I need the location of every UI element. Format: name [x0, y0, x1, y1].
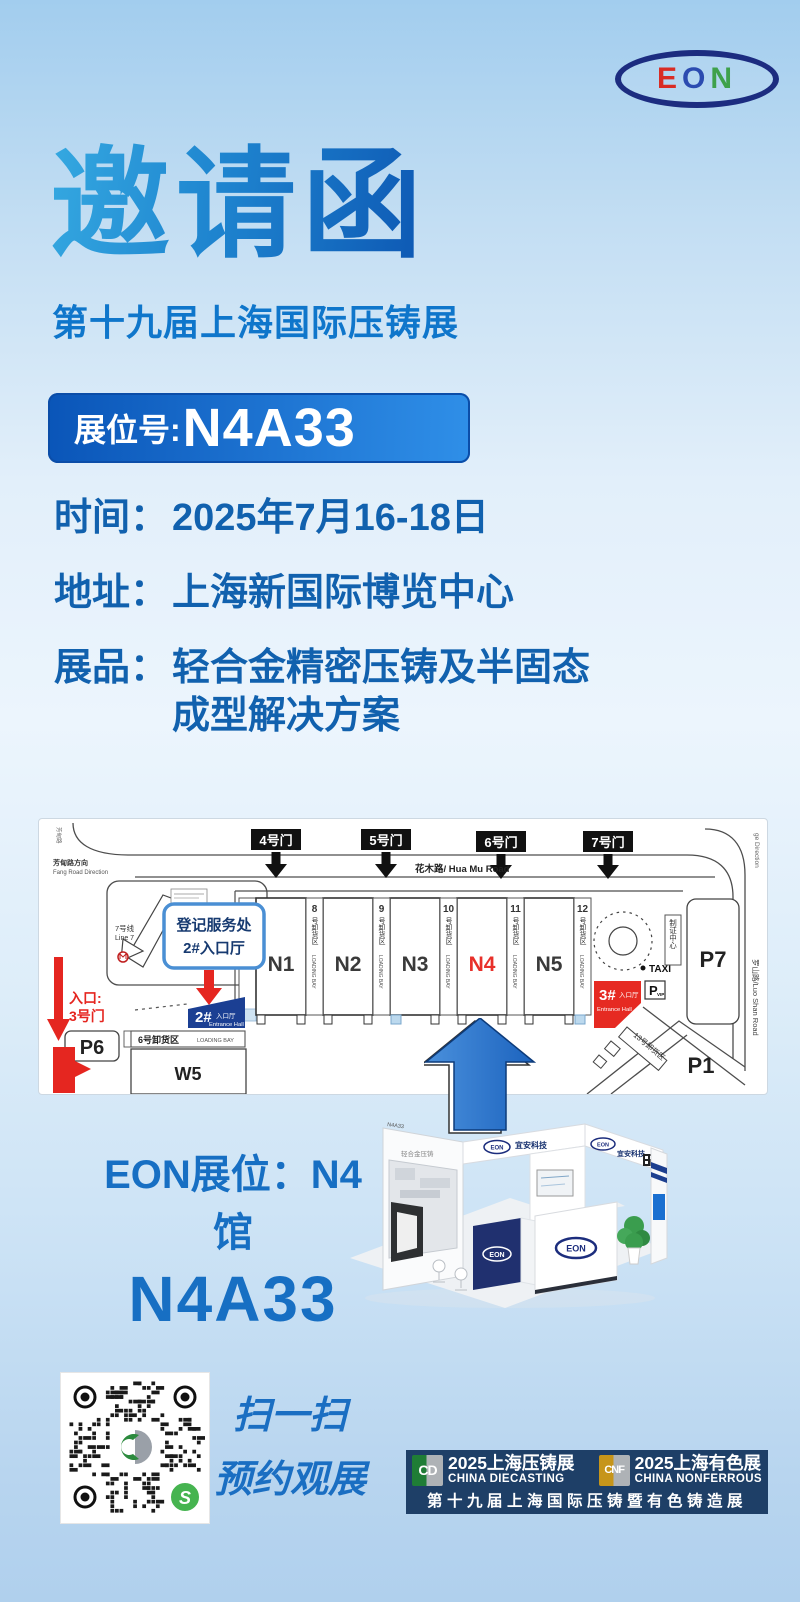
callout-line2: 2#入口厅	[183, 940, 245, 957]
p7-label: P7	[700, 947, 727, 972]
gate-5-label: 5号门	[369, 833, 402, 848]
parking-p7: P7	[687, 899, 739, 1024]
booth-badge-number: N4A33	[183, 397, 356, 459]
hall-n5: N5	[524, 898, 574, 1024]
hall-n2-label: N2	[335, 953, 362, 976]
bay6-strip: 6号卸货区 LOADING BAY	[124, 1031, 245, 1047]
detail-row-time: 时间： 2025年7月16-18日	[54, 494, 754, 542]
hall-n3: N3	[390, 898, 440, 1024]
left-direction-en: Fang Road Direction	[53, 870, 108, 876]
strip10-en: LOADING BAY	[444, 955, 450, 989]
entrance2-en: Entrance Hall	[209, 1022, 244, 1028]
event-details: 时间： 2025年7月16-18日 地址： 上海新国际博览中心 展品： 轻合金精…	[54, 494, 754, 767]
p6-label: P6	[80, 1037, 104, 1059]
hall-n4-label: N4	[469, 953, 496, 976]
strip10-num: 10	[443, 904, 455, 915]
detail-row-exhibits: 展品： 轻合金精密压铸及半固态 成型解决方案	[54, 644, 754, 740]
booth-hall-line: EON展位：N4馆	[102, 1142, 364, 1258]
detail-row-address: 地址： 上海新国际博览中心	[54, 569, 754, 617]
diecasting-subtitle: CHINA DIECASTING	[448, 1473, 574, 1486]
strip10-cn: 号卸货区	[445, 917, 453, 945]
vip-parking: P VIP	[645, 981, 665, 999]
logo-letter-n: N	[710, 64, 737, 94]
road-huamu-label: 花木路/ Hua Mu Road	[415, 863, 510, 875]
navy-desk-eon-logo: EON	[489, 1252, 504, 1259]
entrance-hall-2: 2# 入口厅 Entrance Hall	[188, 997, 245, 1028]
road-luoshan-label: 罗山路/Luo Shan Road	[751, 959, 761, 1036]
p1-label: P1	[688, 1053, 715, 1078]
booth-pointer-arrow	[424, 1018, 536, 1134]
expo-banner: CD 2025上海压铸展 CHINA DIECASTING CNF 2025上海…	[406, 1450, 768, 1514]
booth-number-line: N4A33	[102, 1262, 364, 1336]
halls: N1 N2 N3 N4	[256, 898, 574, 1024]
beam1-eon-logo: EON	[490, 1146, 503, 1152]
gate-7-label: 7号门	[591, 835, 624, 850]
detail-value-exhibits-line1: 轻合金精密压铸及半固态	[172, 644, 590, 692]
metro-line-label: 7号线	[115, 923, 135, 933]
hall-n5-label: N5	[536, 953, 563, 976]
logo-letter-e: E	[657, 64, 682, 94]
diecasting-title: 2025上海压铸展	[448, 1454, 574, 1473]
expo-banner-bottom: 第十九届上海国际压铸暨有色铸造展	[412, 1489, 762, 1511]
parking-p1: 13号卸货区 P1	[593, 1027, 714, 1078]
booth-wall-text: 轻合金压铸	[401, 1149, 434, 1158]
detail-label-time: 时间：	[54, 494, 172, 542]
strip11-num: 11	[510, 904, 521, 915]
hall-n2: N2	[323, 898, 373, 1024]
strip8-num: 8	[312, 904, 318, 915]
bay6-cn: 6号卸货区	[138, 1034, 179, 1045]
cert-center: 制证中心	[665, 915, 681, 965]
left-edge-road-label: 芳甸路	[55, 827, 63, 844]
desk-eon-logo: EON	[566, 1244, 586, 1254]
booth-left-wall: 轻合金压铸 N4A33	[383, 1122, 463, 1290]
qr-center-logo	[116, 1428, 154, 1466]
beam1-brand: 宜安科技	[515, 1140, 548, 1150]
qr-code-svg: S	[65, 1377, 205, 1517]
bay6-en: LOADING BAY	[197, 1038, 234, 1044]
corner-direction-note: ge Direction	[753, 833, 760, 868]
entrance3-cn: 入口厅	[619, 991, 639, 999]
scan-line2: 预约观展	[190, 1448, 390, 1503]
w5-label: W5	[175, 1064, 202, 1084]
expo-banner-top: CD 2025上海压铸展 CHINA DIECASTING CNF 2025上海…	[412, 1454, 762, 1486]
hall-n4-highlight: N4	[457, 898, 507, 1024]
entrance-hall-3: 3# 入口厅 Entrance Hall	[594, 981, 641, 1028]
booth-badge-label: 展位号:	[74, 405, 181, 451]
gate-5: 5号门	[361, 829, 411, 878]
invitation-poster: E O N 邀请函 第十九届上海国际压铸展 展位号: N4A33 时间： 202…	[0, 0, 800, 1602]
gate-6-label: 6号门	[484, 835, 517, 850]
venue-map-svg: 芳甸路方向 Fang Road Direction 芳甸路 7号线 Line 7	[39, 819, 767, 1094]
expo-nonferrous: CNF 2025上海有色展 CHINA NONFERROUS	[599, 1454, 762, 1486]
entry-line2: 3号门	[69, 1008, 105, 1024]
detail-value-exhibits: 轻合金精密压铸及半固态 成型解决方案	[172, 644, 590, 740]
detail-value-time: 2025年7月16-18日	[172, 494, 489, 542]
taxi-label: TAXI	[649, 964, 671, 975]
entry-arrow-group	[47, 957, 91, 1093]
nonferrous-logo: CNF	[599, 1455, 630, 1486]
entrance3-num: 3#	[599, 987, 616, 1004]
detail-label-address: 地址：	[54, 569, 172, 617]
strip11-en: LOADING BAY	[511, 955, 517, 989]
booth-navy-desk: EON	[473, 1218, 541, 1290]
gate-4: 4号门	[251, 829, 301, 878]
taxi-dot	[641, 966, 646, 971]
logo-letter-o: O	[682, 64, 710, 94]
nonferrous-subtitle: CHINA NONFERROUS	[635, 1473, 762, 1486]
callout-line1: 登记服务处	[175, 916, 252, 934]
booth-caption: EON展位：N4馆 N4A33	[102, 1142, 364, 1336]
entry-line1: 入口:	[69, 990, 102, 1006]
strip12-en: LOADING BAY	[578, 955, 584, 989]
strip9-cn: 号卸货区	[378, 917, 386, 945]
strip11-cn: 号卸货区	[512, 917, 520, 945]
entrance2-cn: 入口厅	[216, 1012, 236, 1020]
strip9-num: 9	[379, 904, 385, 915]
detail-value-address: 上海新国际博览中心	[172, 569, 514, 617]
page-subtitle: 第十九届上海国际压铸展	[52, 294, 459, 346]
detail-value-exhibits-line2: 成型解决方案	[172, 692, 590, 740]
booth-screen	[653, 1194, 665, 1220]
roundabout	[609, 927, 637, 955]
booth-right-column	[651, 1148, 667, 1264]
hall-n3-label: N3	[402, 953, 429, 976]
strip8-en: LOADING BAY	[310, 955, 316, 989]
entrance3-en: Entrance Hall	[597, 1007, 632, 1013]
venue-map: 芳甸路方向 Fang Road Direction 芳甸路 7号线 Line 7	[38, 818, 768, 1095]
diecasting-logo: CD	[412, 1455, 443, 1486]
scan-line1: 扫一扫	[200, 1384, 380, 1439]
hall-n1-label: N1	[268, 953, 295, 976]
beam2-brand: 宜安科技	[617, 1149, 646, 1158]
strip9-en: LOADING BAY	[377, 955, 383, 989]
metro-line-en-label: Line 7	[115, 935, 134, 942]
beam2-eon-logo: EON	[597, 1143, 609, 1149]
roundabout-dotted-path	[594, 912, 652, 970]
strip8-cn: 号卸货区	[311, 917, 319, 945]
booth-number-badge: 展位号: N4A33	[48, 393, 470, 463]
page-title: 邀请函	[50, 136, 428, 274]
strip12-cn: 号卸货区	[579, 917, 587, 945]
detail-label-exhibits: 展品：	[54, 644, 172, 740]
qr-code: S	[60, 1372, 210, 1524]
eon-brand-logo: E O N	[615, 50, 779, 108]
hall-w5: W5	[131, 1049, 246, 1094]
booth-reception-desk: EON	[535, 1202, 625, 1294]
strip12-num: 12	[577, 904, 589, 915]
expo-diecasting: CD 2025上海压铸展 CHINA DIECASTING	[412, 1454, 574, 1486]
cert-center-label: 制证中心	[668, 918, 677, 950]
left-direction-cn: 芳甸路方向	[53, 858, 88, 867]
gate-4-label: 4号门	[259, 833, 292, 848]
registration-callout: 登记服务处 2#入口厅	[164, 904, 264, 968]
walkway-dotted	[135, 1004, 187, 1010]
vip-parking-sub: VIP	[657, 992, 664, 997]
nonferrous-title: 2025上海有色展	[635, 1454, 762, 1473]
